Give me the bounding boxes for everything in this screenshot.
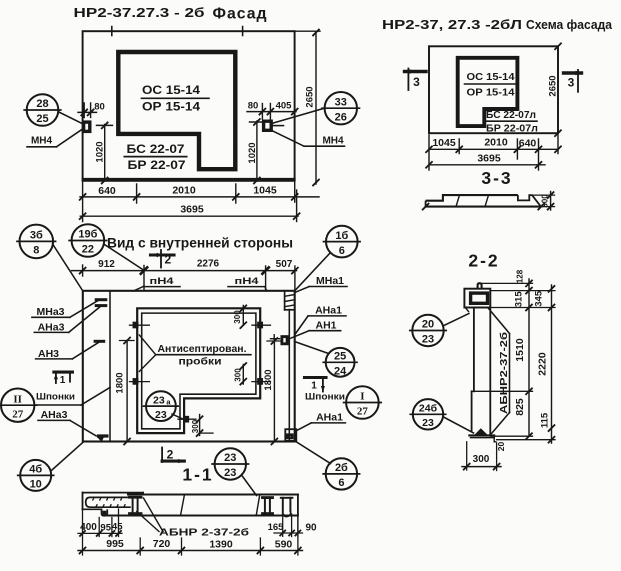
- svg-text:345: 345: [534, 290, 545, 307]
- svg-text:6: 6: [338, 477, 344, 489]
- svg-text:2-2: 2-2: [468, 251, 499, 271]
- svg-text:23: 23: [153, 394, 165, 406]
- svg-text:300: 300: [233, 310, 242, 324]
- svg-text:МНа1: МНа1: [316, 275, 344, 287]
- svg-text:640: 640: [519, 138, 537, 150]
- svg-text:Антисептирован.: Антисептирован.: [158, 344, 247, 355]
- svg-text:пН4: пН4: [235, 276, 260, 287]
- svg-text:3: 3: [568, 76, 575, 90]
- svg-text:80: 80: [248, 101, 259, 112]
- svg-text:825: 825: [514, 398, 526, 416]
- svg-text:24б: 24б: [419, 403, 438, 415]
- svg-text:2010: 2010: [172, 185, 196, 197]
- svg-text:24: 24: [334, 366, 347, 378]
- svg-text:28: 28: [36, 98, 48, 110]
- svg-text:2276: 2276: [197, 259, 220, 270]
- svg-text:4б: 4б: [29, 464, 42, 476]
- svg-text:АН1: АН1: [315, 320, 336, 332]
- svg-text:25: 25: [334, 351, 346, 363]
- svg-text:АНа3: АНа3: [38, 321, 65, 333]
- svg-text:1510: 1510: [514, 338, 526, 362]
- svg-text:300: 300: [473, 454, 490, 465]
- svg-text:Шпонки: Шпонки: [305, 392, 345, 403]
- svg-text:995: 995: [106, 538, 124, 550]
- svg-text:640: 640: [98, 185, 116, 197]
- svg-text:912: 912: [98, 259, 115, 270]
- svg-text:2: 2: [167, 448, 174, 462]
- svg-text:300: 300: [234, 368, 243, 382]
- svg-text:МН4: МН4: [31, 136, 53, 147]
- svg-text:33: 33: [335, 96, 347, 108]
- svg-text:БР 22-07: БР 22-07: [128, 160, 186, 172]
- svg-text:2650: 2650: [305, 86, 316, 107]
- svg-text:720: 720: [153, 538, 171, 550]
- svg-text:2010: 2010: [484, 137, 508, 149]
- svg-text:ОР 15-14: ОР 15-14: [467, 88, 515, 99]
- svg-text:115: 115: [539, 412, 550, 428]
- svg-text:БР 22-07л: БР 22-07л: [486, 124, 538, 135]
- svg-text:22: 22: [82, 244, 94, 256]
- svg-text:1: 1: [311, 381, 317, 392]
- svg-text:Шпонки: Шпонки: [36, 391, 75, 402]
- svg-text:1020: 1020: [94, 141, 105, 162]
- svg-text:27: 27: [12, 408, 24, 420]
- svg-text:БС 22-07л: БС 22-07л: [486, 110, 536, 121]
- svg-text:25: 25: [36, 113, 48, 125]
- svg-text:II: II: [13, 393, 22, 405]
- svg-text:1800: 1800: [115, 372, 126, 393]
- svg-text:1-1: 1-1: [182, 465, 213, 485]
- svg-text:АН3: АН3: [38, 348, 59, 360]
- svg-text:БС 22-07: БС 22-07: [127, 144, 185, 156]
- svg-text:1800: 1800: [263, 369, 274, 390]
- svg-text:АНа1: АНа1: [315, 305, 342, 317]
- svg-text:1045: 1045: [253, 185, 277, 197]
- svg-text:23: 23: [155, 409, 167, 421]
- svg-text:3: 3: [413, 75, 420, 89]
- svg-text:пробки: пробки: [179, 355, 222, 367]
- svg-text:АБНР 2-37-2б: АБНР 2-37-2б: [159, 527, 250, 539]
- svg-text:2: 2: [164, 253, 171, 267]
- svg-text:300: 300: [541, 194, 550, 208]
- svg-text:27: 27: [357, 406, 369, 418]
- svg-text:ОС 15-14: ОС 15-14: [142, 85, 201, 97]
- svg-text:6: 6: [339, 245, 345, 257]
- svg-text:АНа1: АНа1: [316, 412, 343, 424]
- svg-text:Фасад: Фасад: [213, 6, 268, 23]
- svg-text:3695: 3695: [477, 153, 501, 165]
- svg-text:19б: 19б: [78, 229, 97, 241]
- svg-text:1045: 1045: [432, 137, 456, 149]
- svg-text:45: 45: [112, 522, 123, 533]
- svg-text:26: 26: [335, 111, 347, 123]
- svg-text:315: 315: [514, 291, 525, 308]
- svg-text:95: 95: [100, 523, 111, 534]
- svg-text:590: 590: [275, 539, 293, 551]
- svg-text:80: 80: [94, 102, 105, 113]
- svg-text:ОР 15-14: ОР 15-14: [142, 102, 201, 114]
- svg-text:ОС 15-14: ОС 15-14: [467, 72, 515, 83]
- svg-text:90: 90: [306, 523, 318, 534]
- svg-text:128: 128: [516, 269, 525, 283]
- svg-text:23: 23: [224, 452, 236, 464]
- svg-text:23: 23: [422, 417, 434, 429]
- svg-text:20: 20: [422, 319, 434, 331]
- svg-text:20: 20: [496, 442, 506, 452]
- svg-text:1020: 1020: [247, 142, 258, 163]
- svg-text:Вид с внутренней стороны: Вид с внутренней стороны: [107, 236, 293, 251]
- svg-text:2650: 2650: [548, 75, 559, 96]
- svg-text:3б: 3б: [30, 230, 43, 242]
- svg-text:10: 10: [30, 479, 42, 491]
- svg-text:3695: 3695: [180, 204, 204, 216]
- svg-text:НР2-37.27.3 - 2б: НР2-37.27.3 - 2б: [74, 5, 205, 20]
- svg-text:507: 507: [276, 259, 293, 270]
- svg-text:НР2-37, 27.3 -2бЛ: НР2-37, 27.3 -2бЛ: [382, 18, 522, 32]
- svg-text:а: а: [166, 398, 171, 407]
- svg-text:3-3: 3-3: [481, 168, 512, 188]
- svg-text:1: 1: [60, 375, 66, 386]
- svg-text:АНа3: АНа3: [41, 409, 68, 421]
- svg-text:1390: 1390: [209, 539, 233, 551]
- svg-text:23: 23: [422, 334, 434, 346]
- svg-text:8: 8: [33, 245, 39, 257]
- svg-text:1б: 1б: [335, 230, 348, 242]
- svg-text:АБНР2-37-2б: АБНР2-37-2б: [498, 332, 510, 414]
- svg-text:I: I: [360, 391, 364, 403]
- svg-text:МН4: МН4: [322, 136, 344, 147]
- svg-text:405: 405: [276, 101, 293, 112]
- svg-text:2б: 2б: [335, 462, 348, 474]
- svg-text:165: 165: [268, 522, 285, 533]
- svg-text:23: 23: [224, 467, 236, 479]
- svg-text:МНа3: МНа3: [36, 306, 64, 318]
- svg-text:2220: 2220: [536, 352, 548, 376]
- svg-text:Схема фасада: Схема фасада: [526, 18, 613, 32]
- svg-text:пН4: пН4: [150, 276, 175, 287]
- svg-text:300: 300: [191, 419, 200, 433]
